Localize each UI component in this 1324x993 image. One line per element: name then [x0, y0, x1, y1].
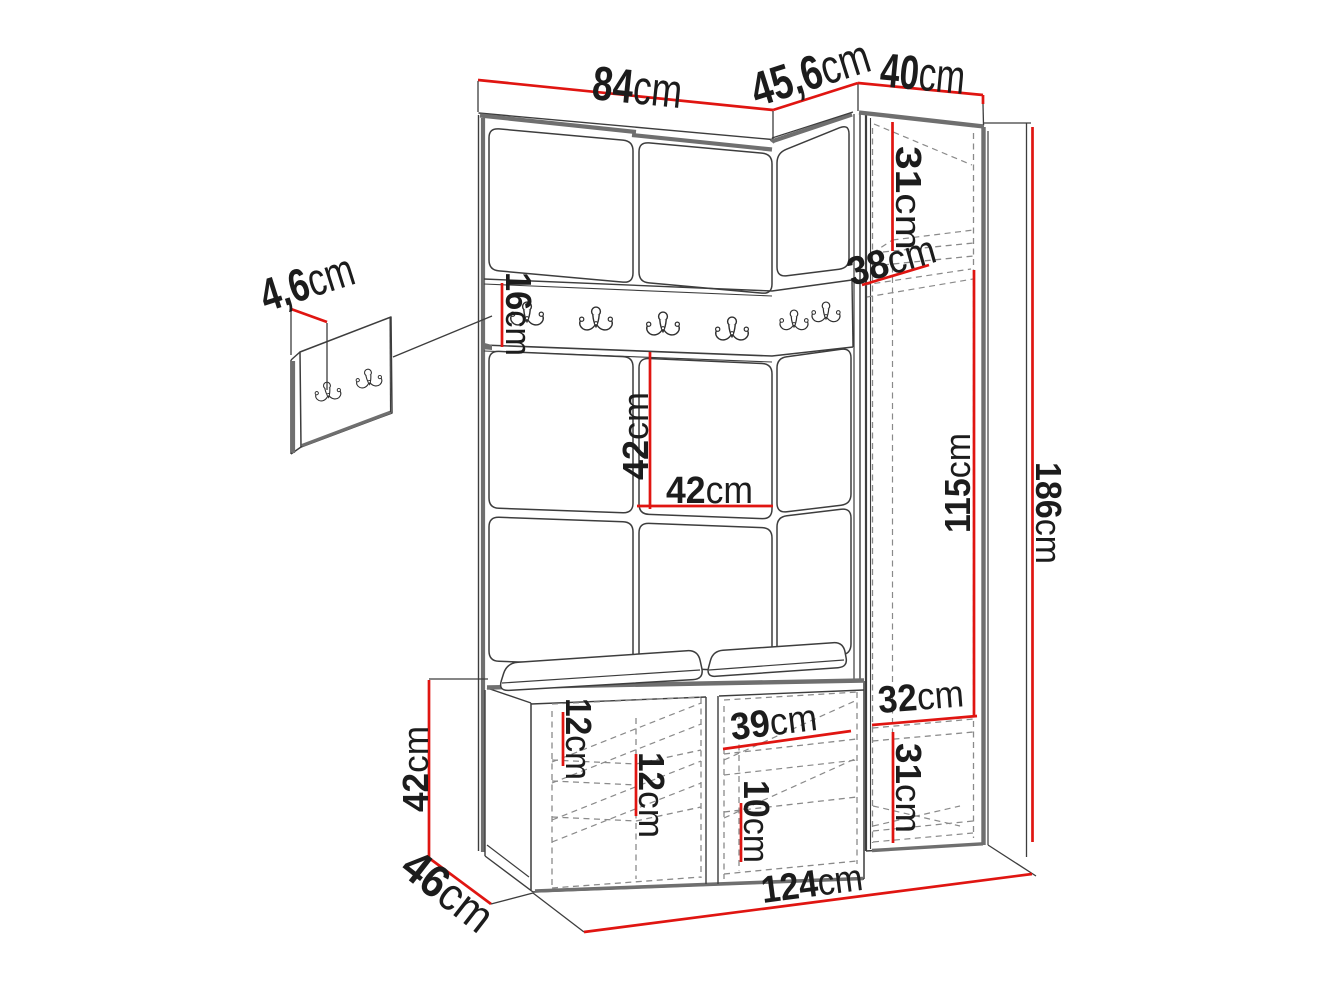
svg-text:115cm: 115cm — [937, 433, 978, 533]
svg-text:186cm: 186cm — [1028, 462, 1069, 564]
svg-text:84cm: 84cm — [590, 57, 685, 119]
svg-text:31cm: 31cm — [888, 743, 929, 833]
svg-text:40cm: 40cm — [878, 44, 968, 105]
svg-text:42cm: 42cm — [615, 392, 656, 480]
svg-text:42cm: 42cm — [395, 726, 436, 812]
svg-text:12cm: 12cm — [631, 752, 672, 838]
svg-text:45,6cm: 45,6cm — [744, 30, 876, 117]
svg-text:4,6cm: 4,6cm — [253, 243, 360, 322]
svg-text:42cm: 42cm — [666, 470, 753, 512]
svg-text:12cm: 12cm — [558, 698, 599, 780]
svg-text:10cm: 10cm — [736, 780, 777, 863]
svg-text:32cm: 32cm — [876, 673, 965, 722]
svg-text:16cm: 16cm — [498, 272, 539, 356]
